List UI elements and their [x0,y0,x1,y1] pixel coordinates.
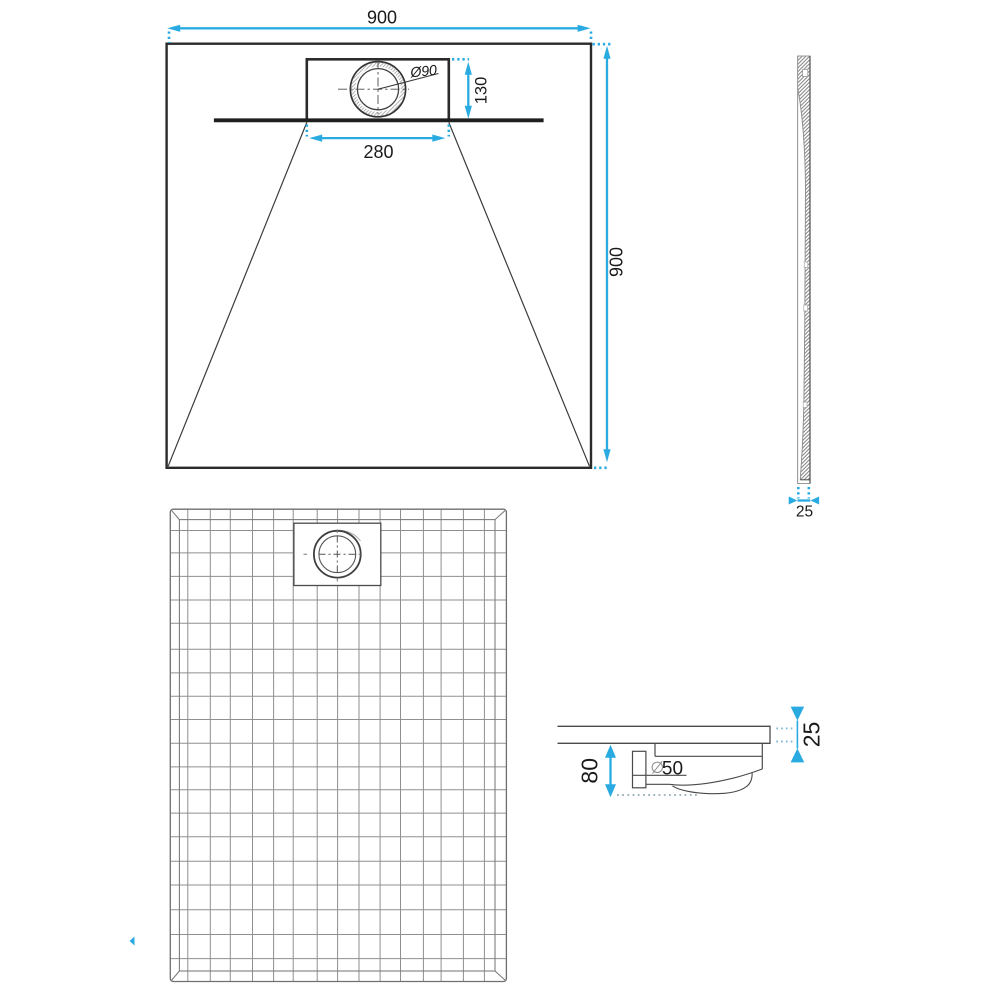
svg-text:900: 900 [607,247,627,277]
svg-text:900: 900 [367,7,397,27]
svg-text:Ø90: Ø90 [409,63,438,82]
svg-text:50: 50 [662,759,683,780]
svg-text:280: 280 [363,142,393,162]
svg-text:25: 25 [799,722,825,748]
svg-text:25: 25 [796,504,813,521]
svg-text:80: 80 [577,758,603,784]
svg-text:130: 130 [473,77,491,105]
